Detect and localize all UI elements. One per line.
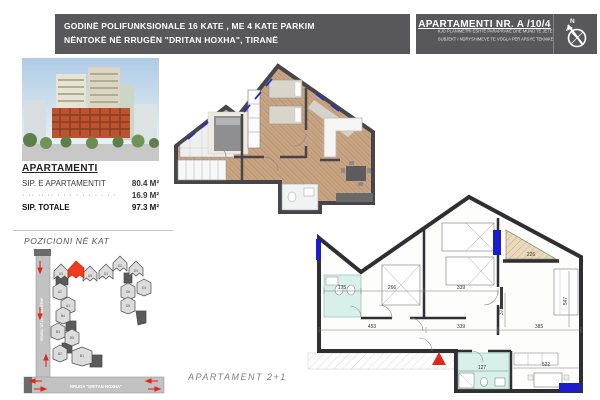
svg-text:B1: B1 xyxy=(80,354,84,358)
plan-sheet: GODINË POLIFUNKSIONALE 16 KATE , ME 4 KA… xyxy=(0,0,600,400)
svg-text:453: 453 xyxy=(368,324,377,330)
svg-text:A5: A5 xyxy=(88,274,92,278)
area-summary-heading: APARTAMENTI xyxy=(22,163,159,174)
disclaimer-line1: KJO PLANIMETRI ËSHTË PARAPRAKE DHE MUND … xyxy=(438,30,531,35)
svg-text:A3: A3 xyxy=(59,272,63,276)
area-row-terrace: · ·· ·· ·· · · · · · · · · · · 16.9 M² xyxy=(22,190,159,202)
sofa xyxy=(554,269,578,315)
apartment-number: APARTAMENTI NR. A /10/4 xyxy=(416,19,553,30)
separator-line xyxy=(13,230,173,231)
project-title-line1: GODINË POLIFUNKSIONALE 16 KATE , ME 4 KA… xyxy=(64,20,410,34)
svg-text:175: 175 xyxy=(338,285,347,291)
svg-text:D2: D2 xyxy=(118,264,122,268)
svg-text:339: 339 xyxy=(457,285,466,291)
svg-text:D3: D3 xyxy=(134,269,138,273)
svg-text:522: 522 xyxy=(542,362,551,368)
project-title-line2: NËNTOKË NË RRUGËN "DRITAN HOXHA", TIRANË xyxy=(64,34,410,48)
apartment-title-band: APARTAMENTI NR. A /10/4 KJO PLANIMETRI Ë… xyxy=(416,14,597,54)
svg-text:127: 127 xyxy=(478,365,487,371)
floor-position-title: POZICIONI NË KAT xyxy=(24,236,109,246)
dining-table xyxy=(534,373,562,387)
svg-text:B5: B5 xyxy=(70,336,74,340)
svg-text:D4: D4 xyxy=(142,286,146,290)
svg-text:D5: D5 xyxy=(126,304,130,308)
kitchen-counter xyxy=(514,353,558,365)
street-horizontal-label: RRUGA "DRITAN HOXHA" xyxy=(70,384,122,389)
svg-text:A2: A2 xyxy=(58,290,62,294)
svg-text:B2: B2 xyxy=(58,352,62,356)
svg-text:385: 385 xyxy=(535,324,544,330)
svg-text:B3: B3 xyxy=(56,330,60,334)
svg-text:226: 226 xyxy=(527,252,536,258)
area-row-total: SIP. TOTALE 97.3 M² xyxy=(22,202,159,214)
technical-floor-plan: 175 266 339 453 339 385 372 547 226 127 … xyxy=(306,193,598,399)
disclaimer-line2: SUBJEKT I NDRYSHIMEVE TË VOGLA PËR ARSYE… xyxy=(438,38,531,43)
compass-icon: N xyxy=(553,14,597,54)
svg-text:B4: B4 xyxy=(61,314,65,318)
svg-text:266: 266 xyxy=(388,285,397,291)
apartment-type-caption: APARTAMENT 2+1 xyxy=(188,372,287,382)
dining-table xyxy=(346,166,366,181)
svg-text:A1: A1 xyxy=(66,304,70,308)
area-row-apartment: SIP. E APARTAMENTIT 80.4 M² xyxy=(22,178,159,190)
svg-text:D1: D1 xyxy=(104,272,108,276)
svg-text:D6: D6 xyxy=(126,290,130,294)
svg-text:372: 372 xyxy=(499,307,505,316)
floor-position-map: RRUGA "AT ZEF VALENTINI" RRUGA "DRITAN H… xyxy=(20,249,168,395)
north-label: N xyxy=(570,18,575,25)
svg-text:547: 547 xyxy=(563,297,569,306)
highlighted-unit xyxy=(68,261,84,278)
svg-text:339: 339 xyxy=(457,324,466,330)
area-summary: APARTAMENTI SIP. E APARTAMENTIT 80.4 M² … xyxy=(22,163,159,214)
building-render xyxy=(22,58,159,161)
project-title-band: GODINË POLIFUNKSIONALE 16 KATE , ME 4 KA… xyxy=(55,14,410,54)
